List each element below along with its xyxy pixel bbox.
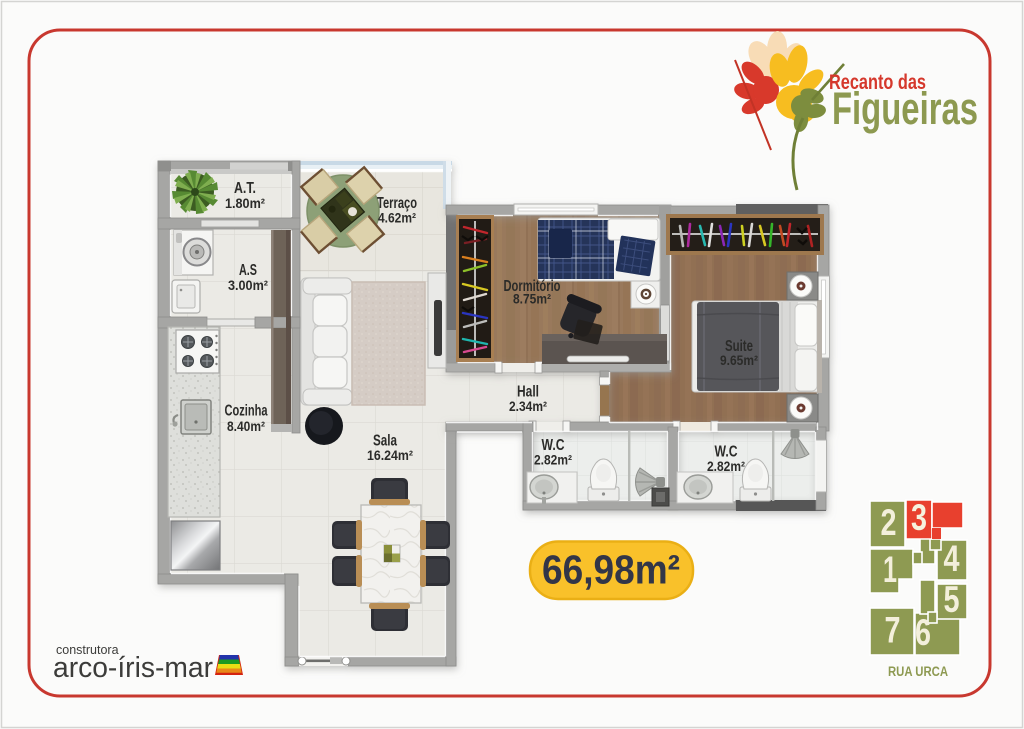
svg-text:9.65m²: 9.65m² — [720, 352, 758, 368]
svg-text:3: 3 — [911, 497, 927, 538]
svg-text:16.24m²: 16.24m² — [367, 447, 413, 463]
svg-text:1: 1 — [883, 549, 897, 590]
svg-text:3.00m²: 3.00m² — [228, 277, 268, 293]
svg-text:2.82m²: 2.82m² — [707, 458, 745, 474]
svg-text:6: 6 — [915, 612, 931, 653]
svg-text:2: 2 — [881, 502, 897, 543]
svg-text:8.40m²: 8.40m² — [227, 418, 265, 434]
svg-text:RUA URCA: RUA URCA — [888, 664, 948, 679]
svg-text:2.82m²: 2.82m² — [534, 452, 572, 468]
svg-text:5: 5 — [944, 579, 960, 620]
svg-text:2.34m²: 2.34m² — [509, 398, 547, 414]
svg-text:4.62m²: 4.62m² — [378, 210, 416, 226]
svg-text:66,98m²: 66,98m² — [542, 547, 680, 593]
svg-text:arco-íris-mar: arco-íris-mar — [53, 652, 213, 684]
svg-text:4: 4 — [944, 538, 960, 579]
svg-text:1.80m²: 1.80m² — [225, 195, 265, 211]
svg-text:7: 7 — [885, 610, 901, 651]
svg-text:Cozinha: Cozinha — [225, 403, 268, 420]
svg-text:8.75m²: 8.75m² — [513, 291, 551, 307]
svg-text:Figueiras: Figueiras — [832, 83, 978, 134]
